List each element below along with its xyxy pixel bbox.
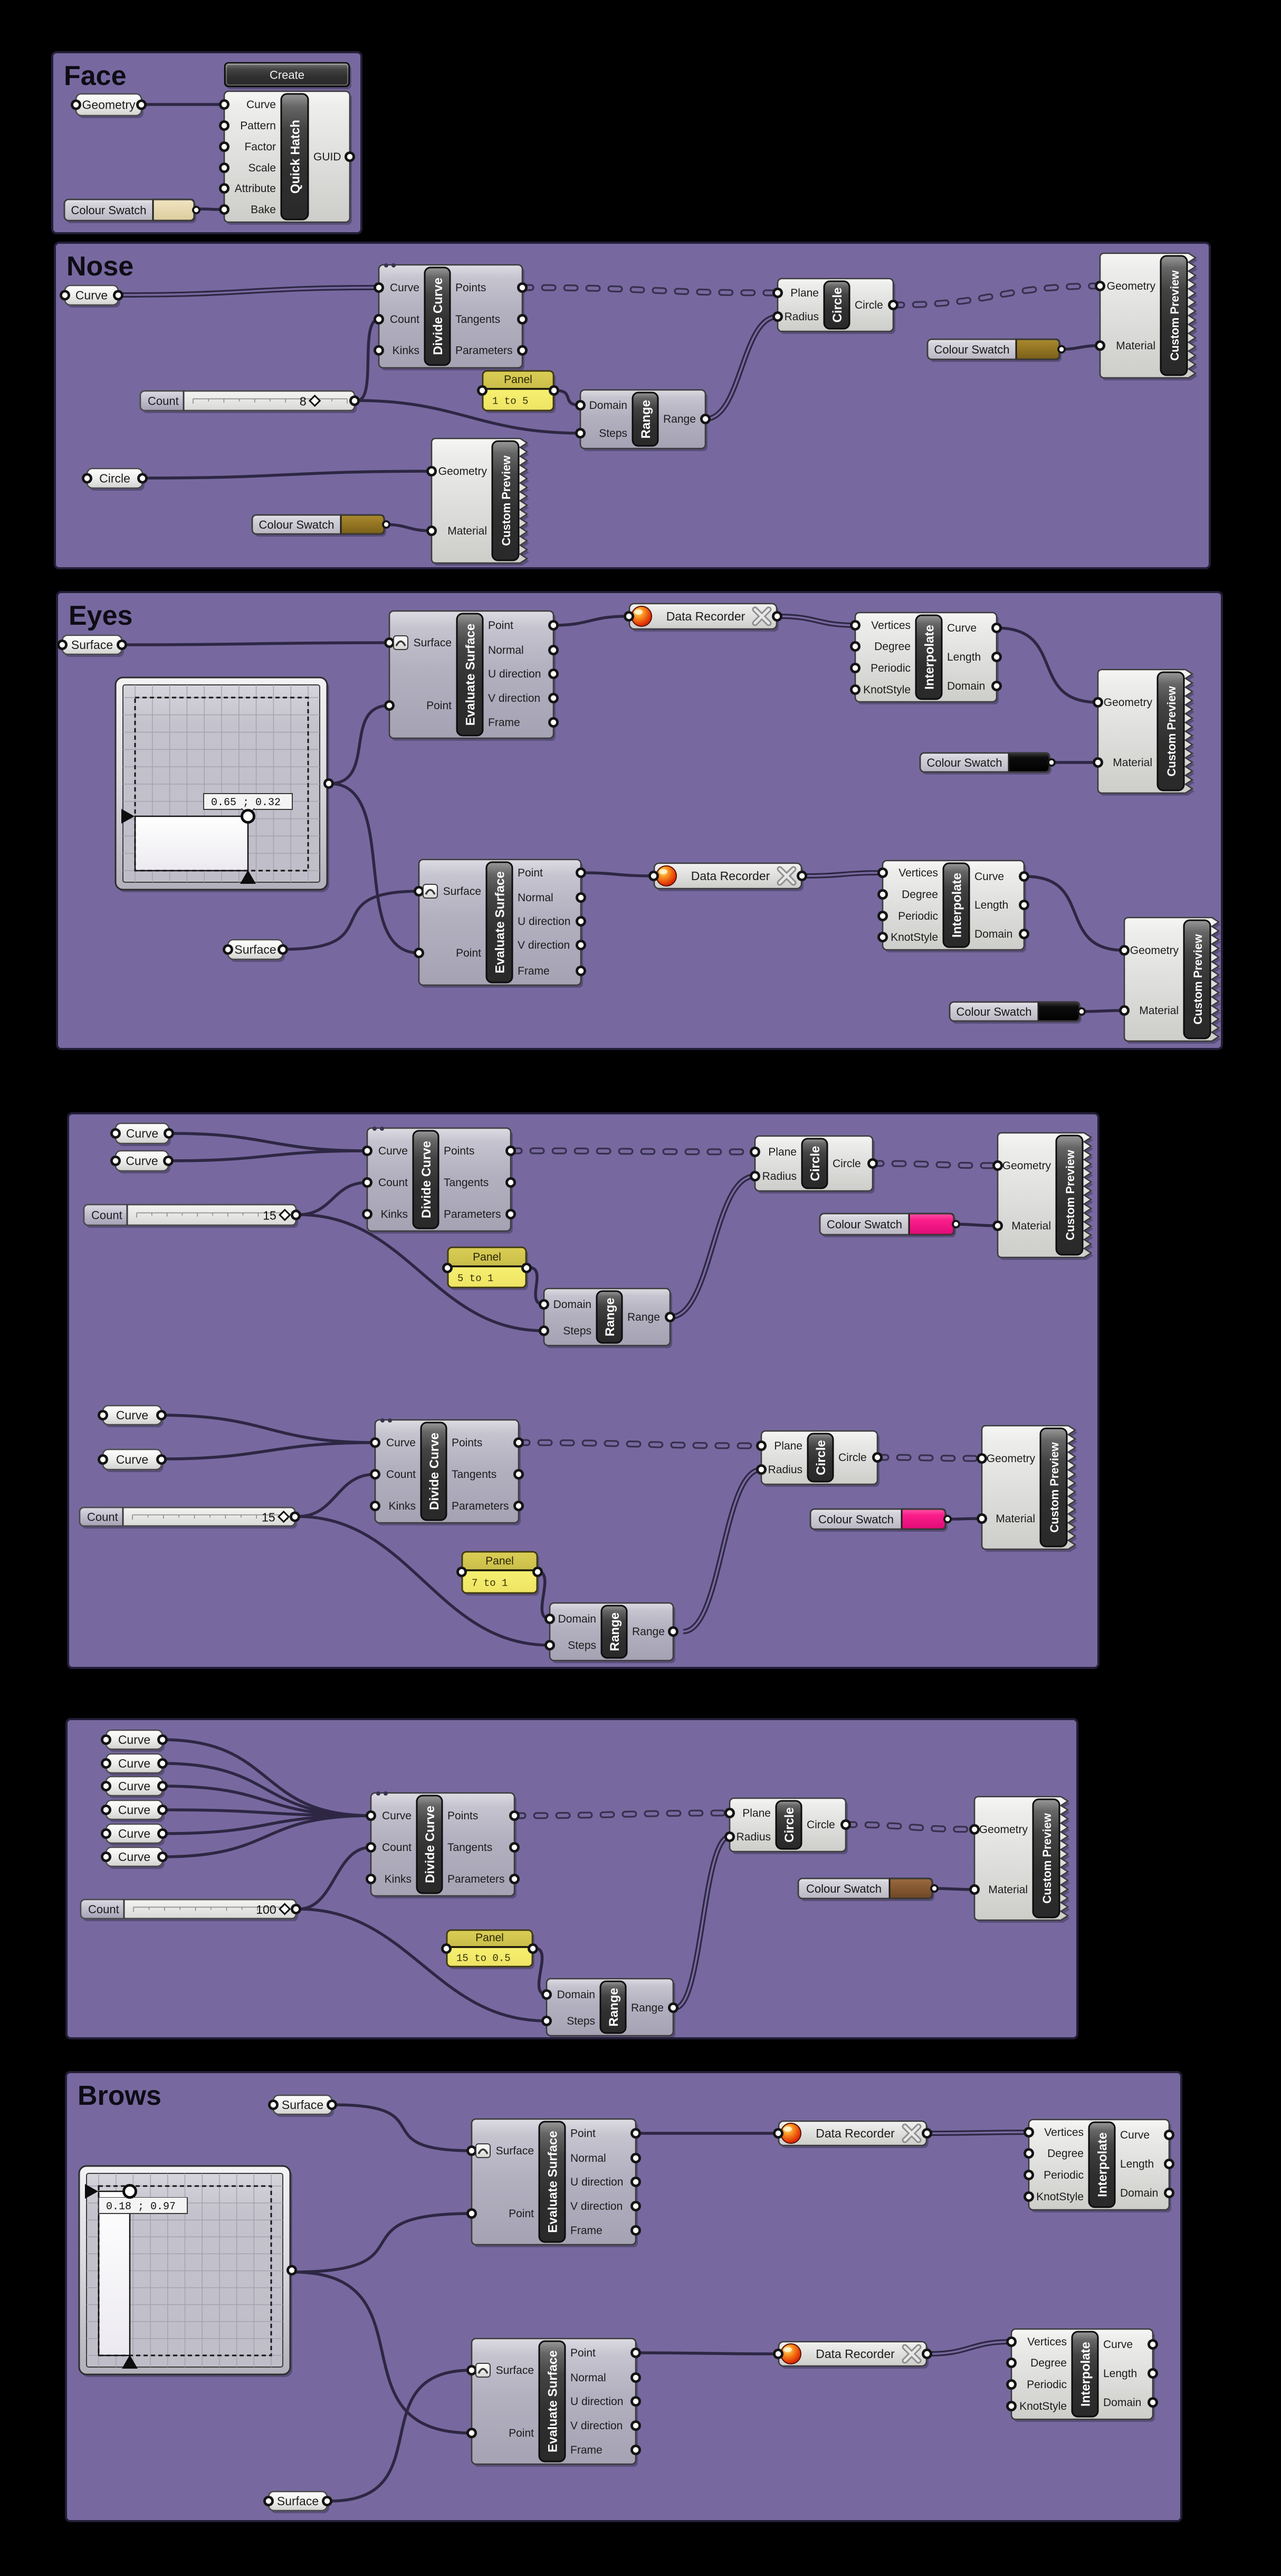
svg-text:Surface: Surface <box>443 885 481 898</box>
svg-text:Range: Range <box>663 413 696 425</box>
svg-text:Surface: Surface <box>496 2145 534 2157</box>
svg-text:Material: Material <box>1113 757 1152 769</box>
svg-text:Count: Count <box>87 1511 118 1524</box>
svg-text:Circle: Circle <box>814 1440 828 1475</box>
svg-text:Kinks: Kinks <box>381 1208 408 1220</box>
svg-text:Circle: Circle <box>99 472 130 485</box>
svg-text:Evaluate Surface: Evaluate Surface <box>464 624 478 726</box>
svg-text:Material: Material <box>1011 1220 1051 1232</box>
svg-text:Brows: Brows <box>78 2081 161 2111</box>
svg-text:Pattern: Pattern <box>240 120 276 132</box>
svg-text:Evaluate Surface: Evaluate Surface <box>546 2350 560 2452</box>
svg-text:Periodic: Periodic <box>1044 2169 1084 2181</box>
svg-text:Point: Point <box>570 2127 596 2140</box>
svg-text:Material: Material <box>447 525 487 537</box>
svg-text:5 to 1: 5 to 1 <box>457 1273 493 1284</box>
svg-text:Count: Count <box>91 1209 122 1222</box>
svg-text:Count: Count <box>386 1468 416 1481</box>
svg-text:Face: Face <box>64 61 127 91</box>
svg-text:Panel: Panel <box>485 1555 514 1567</box>
svg-text:Range: Range <box>603 1297 617 1336</box>
svg-text:Curve: Curve <box>118 1803 150 1817</box>
svg-text:Custom Preview: Custom Preview <box>1165 686 1178 777</box>
svg-text:Data Recorder: Data Recorder <box>816 2347 895 2361</box>
svg-text:Range: Range <box>627 1311 660 1323</box>
svg-text:Interpolate: Interpolate <box>923 625 937 690</box>
svg-text:Parameters: Parameters <box>455 345 513 357</box>
svg-text:Length: Length <box>947 651 981 663</box>
svg-text:Point: Point <box>426 700 452 712</box>
svg-text:Divide Curve: Divide Curve <box>427 1433 442 1510</box>
svg-text:Divide Curve: Divide Curve <box>419 1141 434 1218</box>
svg-text:Kinks: Kinks <box>389 1500 416 1512</box>
svg-text:Periodic: Periodic <box>871 662 911 674</box>
svg-text:100: 100 <box>256 1903 276 1916</box>
svg-text:Evaluate Surface: Evaluate Surface <box>546 2131 560 2232</box>
svg-text:Custom Preview: Custom Preview <box>1168 270 1181 361</box>
svg-text:0.65 ; 0.32: 0.65 ; 0.32 <box>211 797 281 809</box>
svg-text:15: 15 <box>262 1511 275 1524</box>
svg-text:GUID: GUID <box>313 151 341 163</box>
svg-text:U direction: U direction <box>518 915 570 928</box>
svg-text:Surface: Surface <box>282 2098 323 2112</box>
svg-text:Vertices: Vertices <box>898 867 938 879</box>
svg-text:Curve: Curve <box>386 1437 416 1449</box>
svg-text:Custom Preview: Custom Preview <box>1048 1442 1061 1533</box>
svg-text:Data Recorder: Data Recorder <box>666 609 745 623</box>
svg-text:Circle: Circle <box>782 1807 797 1843</box>
svg-text:Geometry: Geometry <box>987 1453 1036 1465</box>
svg-text:Range: Range <box>639 400 653 438</box>
svg-text:Panel: Panel <box>473 1251 501 1263</box>
svg-text:Length: Length <box>974 899 1008 911</box>
svg-text:Steps: Steps <box>599 427 627 440</box>
svg-text:Normal: Normal <box>570 2372 606 2384</box>
svg-text:Circle: Circle <box>833 1158 861 1170</box>
svg-text:8: 8 <box>300 395 307 408</box>
svg-text:V direction: V direction <box>570 2420 623 2432</box>
svg-text:Points: Points <box>455 282 486 294</box>
svg-text:Frame: Frame <box>488 717 520 729</box>
svg-text:Points: Points <box>452 1437 482 1449</box>
svg-text:Domain: Domain <box>1103 2397 1141 2409</box>
svg-text:Parameters: Parameters <box>444 1208 501 1220</box>
svg-text:Kinks: Kinks <box>393 345 419 357</box>
svg-text:Radius: Radius <box>768 1464 802 1476</box>
svg-text:Plane: Plane <box>742 1807 771 1819</box>
svg-text:Divide Curve: Divide Curve <box>431 278 445 355</box>
svg-text:Geometry: Geometry <box>438 465 487 478</box>
svg-text:Points: Points <box>447 1810 478 1822</box>
svg-text:Curve: Curve <box>1103 2339 1133 2351</box>
svg-text:Steps: Steps <box>568 1639 596 1652</box>
svg-text:Colour Swatch: Colour Swatch <box>926 756 1002 769</box>
svg-text:Nose: Nose <box>66 251 133 282</box>
svg-text:V direction: V direction <box>488 692 540 704</box>
svg-text:15 to 0.5: 15 to 0.5 <box>456 1953 511 1964</box>
svg-text:Periodic: Periodic <box>1027 2379 1067 2391</box>
svg-text:U direction: U direction <box>488 668 541 680</box>
svg-text:Domain: Domain <box>974 928 1012 940</box>
svg-text:Colour Swatch: Colour Swatch <box>827 1218 902 1231</box>
svg-text:Colour Swatch: Colour Swatch <box>818 1513 894 1526</box>
svg-text:Parameters: Parameters <box>447 1873 505 1885</box>
svg-text:Colour Swatch: Colour Swatch <box>956 1005 1031 1018</box>
svg-text:Point: Point <box>570 2347 596 2359</box>
svg-text:Geometry: Geometry <box>1107 280 1156 292</box>
svg-text:Create: Create <box>270 69 304 82</box>
svg-text:Custom Preview: Custom Preview <box>1064 1150 1077 1241</box>
svg-text:Quick Hatch: Quick Hatch <box>289 120 303 194</box>
svg-text:Kinks: Kinks <box>385 1873 412 1885</box>
svg-text:Curve: Curve <box>246 99 276 111</box>
svg-text:Data Recorder: Data Recorder <box>816 2126 895 2140</box>
svg-text:Geometry: Geometry <box>1002 1160 1051 1172</box>
svg-text:Circle: Circle <box>807 1819 835 1831</box>
svg-text:7 to 1: 7 to 1 <box>472 1578 508 1589</box>
svg-text:Length: Length <box>1103 2368 1137 2380</box>
svg-text:Geometry: Geometry <box>979 1824 1028 1836</box>
svg-text:Count: Count <box>378 1177 408 1189</box>
svg-text:Steps: Steps <box>567 2015 595 2027</box>
svg-text:Frame: Frame <box>570 2444 603 2456</box>
svg-text:Geometry: Geometry <box>82 98 136 112</box>
svg-text:Degree: Degree <box>902 889 938 901</box>
svg-text:Normal: Normal <box>570 2152 606 2164</box>
svg-text:Custom Preview: Custom Preview <box>1040 1813 1054 1904</box>
svg-text:Curve: Curve <box>1120 2129 1150 2141</box>
svg-text:Curve: Curve <box>118 1779 150 1793</box>
svg-text:Points: Points <box>444 1145 474 1157</box>
svg-text:Tangents: Tangents <box>447 1842 492 1854</box>
svg-text:Curve: Curve <box>378 1145 408 1157</box>
svg-text:Periodic: Periodic <box>898 910 938 922</box>
svg-text:Divide Curve: Divide Curve <box>423 1806 437 1883</box>
svg-text:U direction: U direction <box>570 2176 623 2188</box>
svg-text:Radius: Radius <box>762 1170 797 1182</box>
svg-text:Curve: Curve <box>116 1408 148 1422</box>
svg-text:Surface: Surface <box>414 637 452 649</box>
svg-text:Custom Preview: Custom Preview <box>1191 934 1204 1025</box>
svg-text:Domain: Domain <box>557 1989 595 2001</box>
svg-text:Surface: Surface <box>234 943 276 957</box>
svg-text:Geometry: Geometry <box>1104 697 1153 709</box>
svg-text:Domain: Domain <box>1120 2187 1158 2199</box>
svg-text:Domain: Domain <box>553 1299 591 1311</box>
svg-text:Length: Length <box>1120 2158 1154 2170</box>
svg-text:Range: Range <box>631 2002 664 2014</box>
svg-text:Curve: Curve <box>118 1733 150 1747</box>
svg-text:Range: Range <box>608 1613 622 1651</box>
svg-text:Count: Count <box>88 1903 119 1916</box>
svg-text:Curve: Curve <box>116 1453 148 1466</box>
svg-text:Curve: Curve <box>118 1827 150 1840</box>
svg-text:15: 15 <box>263 1209 276 1223</box>
svg-text:Circle: Circle <box>855 299 883 311</box>
svg-text:Surface: Surface <box>496 2364 534 2377</box>
svg-text:Point: Point <box>509 2427 534 2439</box>
svg-text:Radius: Radius <box>737 1831 771 1843</box>
svg-text:Curve: Curve <box>974 871 1004 883</box>
svg-text:Colour Swatch: Colour Swatch <box>71 204 146 217</box>
svg-text:Degree: Degree <box>1030 2357 1067 2369</box>
svg-text:Tangents: Tangents <box>444 1177 489 1189</box>
svg-text:Point: Point <box>456 947 481 959</box>
svg-text:Curve: Curve <box>947 622 977 634</box>
svg-text:Circle: Circle <box>830 288 845 323</box>
svg-text:Domain: Domain <box>589 399 627 412</box>
svg-text:Tangents: Tangents <box>452 1468 496 1481</box>
svg-text:Curve: Curve <box>382 1810 412 1822</box>
svg-text:Interpolate: Interpolate <box>1096 2132 1110 2197</box>
svg-text:Degree: Degree <box>1047 2148 1084 2160</box>
svg-text:Curve: Curve <box>126 1154 158 1168</box>
svg-text:Domain: Domain <box>558 1613 596 1625</box>
svg-text:Factor: Factor <box>244 141 276 153</box>
svg-text:Bake: Bake <box>251 204 276 216</box>
svg-text:Interpolate: Interpolate <box>1079 2342 1093 2407</box>
svg-text:Custom Preview: Custom Preview <box>500 455 513 546</box>
svg-text:Point: Point <box>518 867 543 879</box>
svg-text:Curve: Curve <box>390 282 419 294</box>
svg-text:Material: Material <box>1116 340 1155 352</box>
svg-text:Evaluate Surface: Evaluate Surface <box>493 871 508 973</box>
svg-text:Plane: Plane <box>790 287 819 299</box>
svg-text:Vertices: Vertices <box>1044 2126 1084 2139</box>
svg-text:Point: Point <box>488 619 513 632</box>
svg-text:Frame: Frame <box>570 2225 603 2237</box>
svg-text:Material: Material <box>996 1513 1035 1525</box>
svg-text:Curve: Curve <box>75 289 108 302</box>
svg-text:Surface: Surface <box>277 2494 319 2508</box>
svg-text:Tangents: Tangents <box>455 313 500 326</box>
svg-text:Panel: Panel <box>475 1932 504 1944</box>
svg-text:Scale: Scale <box>248 162 276 174</box>
svg-text:Range: Range <box>607 1988 621 2026</box>
svg-text:KnotStyle: KnotStyle <box>1019 2400 1067 2412</box>
svg-text:Colour Swatch: Colour Swatch <box>806 1882 882 1895</box>
svg-text:Eyes: Eyes <box>69 600 132 631</box>
svg-text:Curve: Curve <box>118 1850 150 1864</box>
svg-text:Colour Swatch: Colour Swatch <box>259 518 334 531</box>
svg-text:Plane: Plane <box>774 1440 802 1452</box>
svg-text:Panel: Panel <box>504 374 532 386</box>
svg-text:Radius: Radius <box>785 311 819 323</box>
svg-text:U direction: U direction <box>570 2396 623 2408</box>
svg-text:KnotStyle: KnotStyle <box>863 684 911 696</box>
svg-text:Frame: Frame <box>518 965 550 977</box>
svg-text:Normal: Normal <box>488 644 524 656</box>
svg-text:Normal: Normal <box>518 892 553 904</box>
svg-text:Steps: Steps <box>563 1325 591 1337</box>
svg-text:Material: Material <box>1139 1005 1179 1017</box>
svg-text:Plane: Plane <box>768 1146 797 1158</box>
svg-text:1 to 5: 1 to 5 <box>492 396 528 407</box>
svg-text:Curve: Curve <box>118 1757 150 1770</box>
svg-text:Curve: Curve <box>126 1127 158 1140</box>
svg-text:Count: Count <box>148 395 179 408</box>
svg-text:Count: Count <box>382 1842 412 1854</box>
svg-text:Circle: Circle <box>808 1146 823 1181</box>
svg-text:V direction: V direction <box>570 2200 623 2212</box>
svg-text:Geometry: Geometry <box>1130 944 1179 957</box>
svg-text:Vertices: Vertices <box>871 619 911 632</box>
svg-text:Data Recorder: Data Recorder <box>691 869 770 883</box>
svg-text:Range: Range <box>632 1626 665 1638</box>
svg-text:KnotStyle: KnotStyle <box>1036 2191 1084 2203</box>
svg-text:Degree: Degree <box>874 641 911 653</box>
svg-text:Interpolate: Interpolate <box>950 873 964 938</box>
svg-text:Parameters: Parameters <box>452 1500 509 1512</box>
svg-text:Domain: Domain <box>947 680 985 692</box>
svg-text:0.18 ; 0.97: 0.18 ; 0.97 <box>106 2201 176 2213</box>
svg-text:Material: Material <box>988 1884 1028 1896</box>
svg-text:Surface: Surface <box>71 638 113 652</box>
svg-text:V direction: V direction <box>518 939 570 951</box>
svg-text:Point: Point <box>509 2208 534 2220</box>
svg-text:Circle: Circle <box>838 1452 867 1464</box>
svg-text:Colour Swatch: Colour Swatch <box>934 343 1009 356</box>
svg-text:Attribute: Attribute <box>235 183 276 195</box>
svg-text:Vertices: Vertices <box>1027 2336 1067 2348</box>
svg-text:KnotStyle: KnotStyle <box>891 931 938 943</box>
svg-text:Count: Count <box>390 313 419 326</box>
